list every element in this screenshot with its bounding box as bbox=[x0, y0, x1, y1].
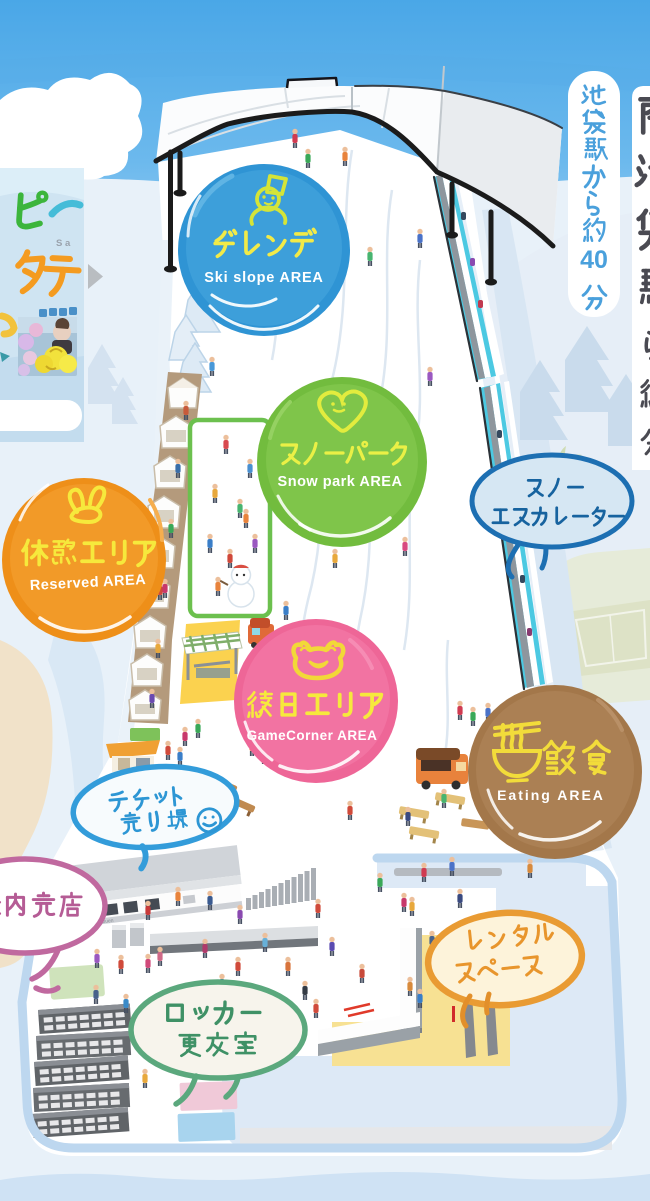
svg-text:40: 40 bbox=[580, 246, 608, 274]
svg-text:Snow park AREA: Snow park AREA bbox=[278, 474, 403, 490]
svg-text:Eating AREA: Eating AREA bbox=[497, 787, 605, 803]
svg-text:S a: S a bbox=[56, 238, 71, 249]
svg-text:GameCorner AREA: GameCorner AREA bbox=[247, 728, 378, 743]
svg-text:Ski slope AREA: Ski slope AREA bbox=[204, 270, 323, 286]
